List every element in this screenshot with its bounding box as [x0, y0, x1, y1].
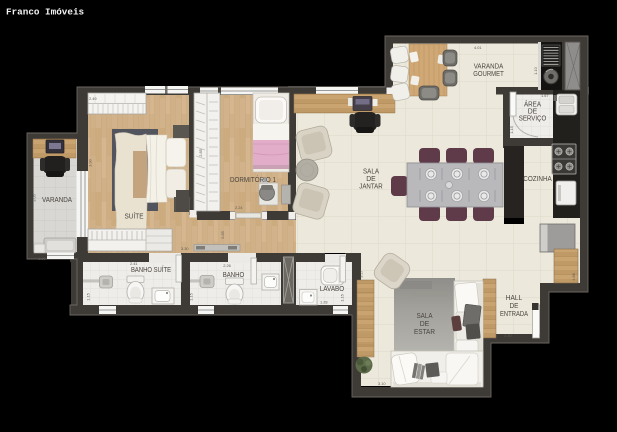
svg-text:2.24: 2.24: [235, 205, 243, 210]
svg-text:Franco Imóveis: Franco Imóveis: [6, 7, 85, 18]
svg-text:BANHO: BANHO: [223, 272, 245, 279]
svg-text:SALA: SALA: [417, 313, 433, 320]
svg-text:3.10: 3.10: [378, 381, 386, 386]
svg-text:DE: DE: [420, 321, 430, 328]
svg-text:1.15: 1.15: [340, 294, 345, 302]
svg-text:ESTAR: ESTAR: [414, 329, 435, 336]
svg-text:COZINHA: COZINHA: [523, 176, 552, 183]
svg-text:ÁREA: ÁREA: [524, 100, 541, 109]
svg-text:SUÍTE: SUÍTE: [125, 212, 144, 221]
svg-text:VARANDA: VARANDA: [42, 197, 72, 204]
svg-text:1.67: 1.67: [541, 93, 549, 98]
svg-text:2.49: 2.49: [89, 96, 97, 101]
svg-text:1.30: 1.30: [504, 333, 512, 338]
svg-text:2.85: 2.85: [198, 149, 203, 157]
svg-text:4.01: 4.01: [474, 45, 482, 50]
svg-text:GOURMET: GOURMET: [473, 71, 504, 78]
svg-text:LAVABO: LAVABO: [320, 286, 345, 293]
svg-text:BANHO SUÍTE: BANHO SUÍTE: [131, 265, 171, 274]
svg-text:0.85: 0.85: [220, 231, 225, 239]
svg-text:1.15: 1.15: [509, 126, 514, 134]
svg-text:4.66: 4.66: [571, 273, 576, 281]
svg-text:1.28: 1.28: [320, 300, 328, 305]
svg-text:2.41: 2.41: [130, 261, 138, 266]
svg-text:2.26: 2.26: [223, 263, 231, 268]
svg-text:DE: DE: [366, 176, 376, 183]
svg-text:HALL: HALL: [506, 295, 523, 302]
svg-text:3.05: 3.05: [32, 194, 37, 202]
svg-text:DE: DE: [510, 303, 519, 310]
svg-text:DE: DE: [528, 109, 538, 116]
svg-text:3.90: 3.90: [88, 158, 93, 166]
svg-text:1.15: 1.15: [86, 293, 91, 301]
svg-text:DORMITÓRIO 1: DORMITÓRIO 1: [230, 175, 276, 184]
svg-text:SERVIÇO: SERVIÇO: [519, 116, 547, 123]
svg-text:JANTAR: JANTAR: [359, 184, 383, 191]
svg-text:1.15: 1.15: [189, 293, 194, 301]
svg-text:1.10: 1.10: [533, 66, 538, 74]
svg-text:1.10: 1.10: [38, 256, 46, 261]
svg-text:VARANDA: VARANDA: [474, 64, 504, 71]
svg-text:3.30: 3.30: [181, 246, 189, 251]
svg-text:ENTRADA: ENTRADA: [500, 311, 528, 318]
svg-text:SALA: SALA: [363, 169, 379, 176]
svg-text:3.27: 3.27: [359, 270, 364, 278]
